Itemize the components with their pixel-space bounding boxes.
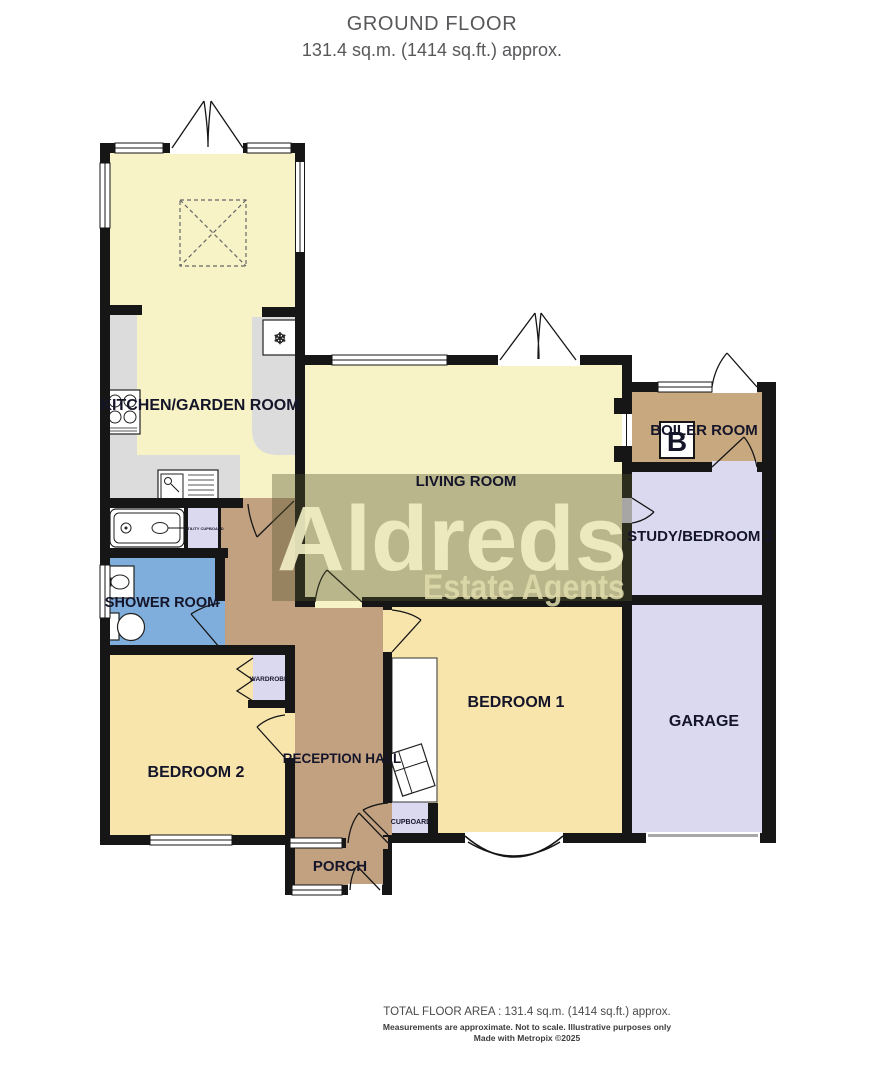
label-living: LIVING ROOM — [416, 473, 517, 490]
label-porch: PORCH — [313, 858, 367, 875]
room-hall-main — [295, 607, 392, 838]
label-bedroom1: BEDROOM 1 — [468, 694, 565, 711]
label-utility: UTILITY CUPBOARD — [184, 526, 223, 531]
builtin-wardrobe-icon — [389, 658, 437, 802]
total-floor-area: TOTAL FLOOR AREA : 131.4 sq.m. (1414 sq.… — [187, 1006, 867, 1018]
label-cupboard: CUPBOARD — [391, 819, 431, 826]
label-study: STUDY/BEDROOM 3 — [627, 528, 773, 545]
label-bedroom2: BEDROOM 2 — [148, 764, 245, 781]
plan-footer: TOTAL FLOOR AREA : 131.4 sq.m. (1414 sq.… — [187, 1006, 867, 1043]
floor-plan-canvas: ❄ — [0, 0, 881, 1080]
bath-icon — [110, 509, 184, 547]
svg-text:❄: ❄ — [273, 331, 286, 348]
living-french-doors — [500, 313, 576, 360]
label-kitchen: KITCHEN/GARDEN ROOM — [100, 397, 299, 414]
garden-french-doors — [172, 101, 243, 148]
watermark: Aldreds Estate Agents — [272, 474, 632, 607]
door-jamb-notch — [614, 446, 632, 462]
garage-door-line — [648, 834, 758, 837]
label-garage: GARAGE — [669, 713, 740, 730]
label-boiler: BOILER ROOM — [650, 422, 758, 439]
door-jamb-notch — [614, 398, 632, 414]
label-wardrobe: WARDROBE — [250, 676, 289, 683]
label-shower: SHOWER ROOM — [105, 595, 219, 611]
watermark-tagline: Estate Agents — [423, 568, 625, 607]
floor-plan-page: { "header": { "title": "GROUND FLOOR", "… — [0, 0, 881, 1080]
disclaimer: Measurements are approximate. Not to sca… — [187, 1022, 867, 1032]
label-hall: RECEPTION HALL — [283, 751, 402, 766]
metropix-credit: Made with Metropix ©2025 — [187, 1033, 867, 1043]
toilet-icon — [108, 613, 145, 641]
freezer-icon: ❄ — [263, 320, 297, 355]
